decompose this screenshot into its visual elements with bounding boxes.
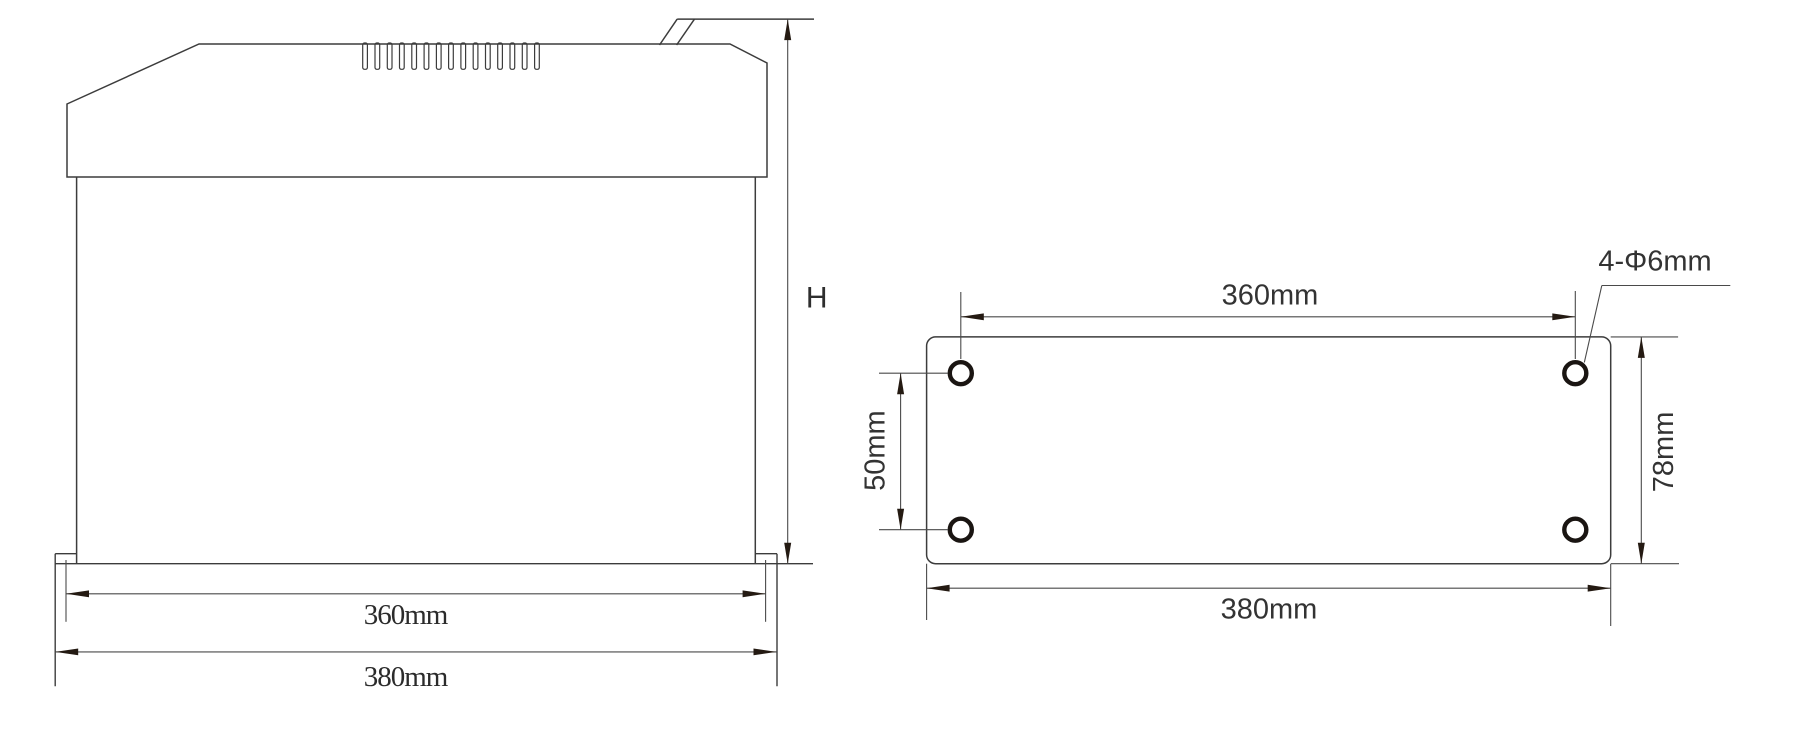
svg-text:360mm: 360mm: [1222, 280, 1319, 312]
svg-text:380mm: 380mm: [364, 661, 449, 693]
svg-text:4-Φ6mm: 4-Φ6mm: [1598, 246, 1711, 278]
svg-text:50mm: 50mm: [860, 410, 892, 491]
svg-text:78mm: 78mm: [1648, 412, 1680, 493]
svg-text:380mm: 380mm: [1221, 593, 1318, 625]
svg-text:H: H: [806, 282, 828, 315]
svg-text:360mm: 360mm: [364, 599, 449, 631]
